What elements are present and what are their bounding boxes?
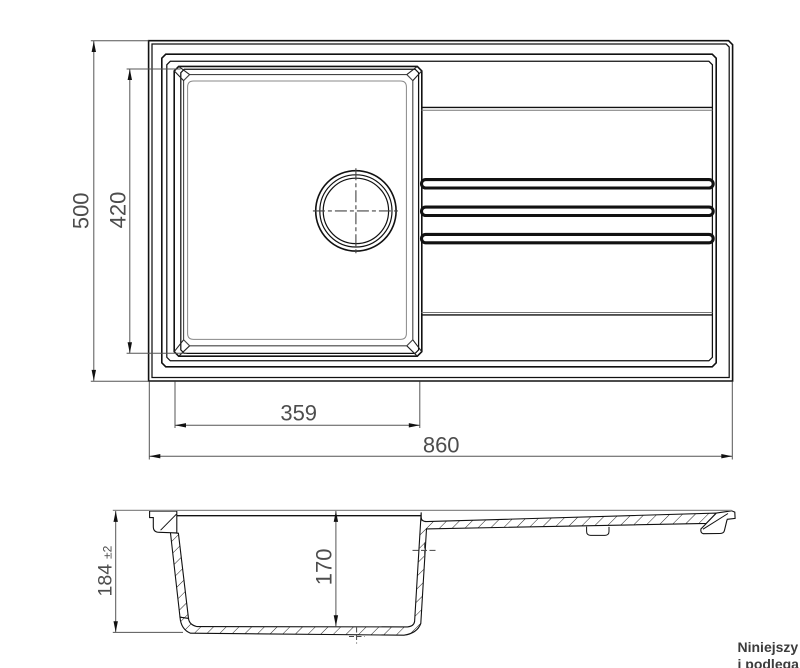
svg-text:860: 860	[423, 432, 460, 457]
svg-text:170: 170	[312, 549, 337, 586]
svg-text:359: 359	[280, 400, 317, 425]
svg-text:184: 184	[95, 564, 117, 597]
svg-text:±2: ±2	[101, 545, 115, 559]
svg-text:420: 420	[106, 192, 131, 229]
svg-text:500: 500	[69, 192, 94, 229]
